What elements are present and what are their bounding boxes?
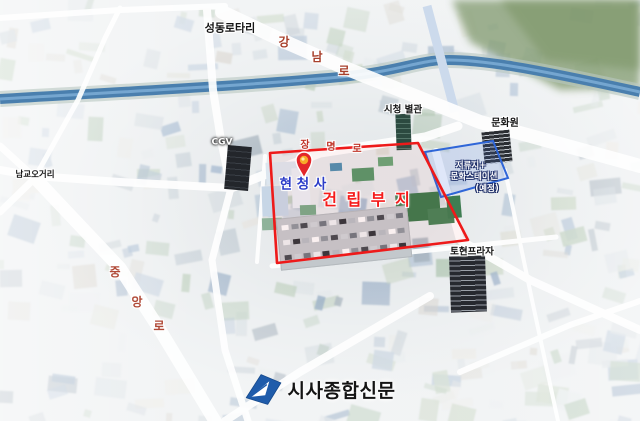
label-reservoir-line3: (예정) [475, 185, 498, 194]
label-gangnam-ro-1: 강 [278, 36, 289, 48]
label-namgyo-ogeori: 남교오거리 [15, 171, 54, 180]
label-gangnam-ro-2: 남 [311, 51, 322, 63]
label-jungang-ro-1: 중 [109, 266, 120, 278]
label-city-hall-annex: 시청 별관 [384, 105, 422, 115]
label-seongdong-rotary: 성동로타리 [205, 23, 256, 34]
label-tohyeon-plaza: 토현프라자 [450, 247, 494, 257]
location-pin-icon [293, 150, 315, 180]
label-jangmyeong-ro-2: 명 [326, 143, 335, 153]
label-reservoir-line1: 저류지+ [456, 162, 487, 171]
label-gangnam-ro-3: 로 [338, 65, 349, 77]
newspaper-logo-icon [245, 373, 283, 406]
newspaper-logo: 시사종합신문 [245, 373, 396, 406]
label-county-office: 현 청 사 [280, 178, 327, 192]
label-cgv: CGV [212, 139, 233, 148]
label-construction-site: 건 립 부 지 [322, 192, 412, 208]
label-jungang-ro-2: 앙 [131, 296, 142, 308]
label-jangmyeong-ro-3: 로 [352, 145, 361, 155]
label-jungang-ro-3: 로 [153, 320, 164, 332]
newspaper-logo-text: 시사종합신문 [288, 376, 396, 403]
label-culture-center: 문화원 [491, 119, 519, 129]
label-reservoir-line2: 문화스테이션 [451, 173, 498, 182]
aerial-map-image: 성동로타리 강 남 로 시청 별관 문화원 장 명 로 CGV 남교오거리 현 … [0, 0, 640, 421]
